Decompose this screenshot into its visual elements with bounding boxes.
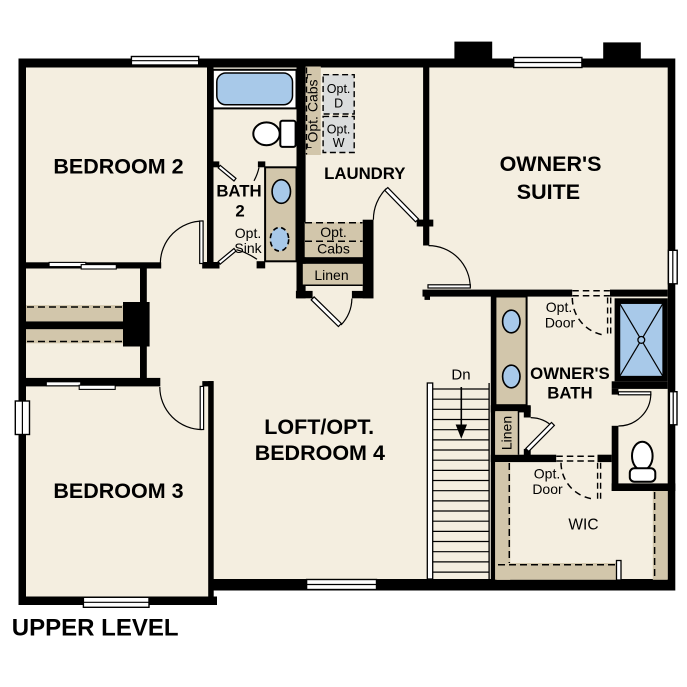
- svg-text:WIC: WIC: [568, 517, 598, 534]
- svg-text:BATH: BATH: [547, 384, 592, 403]
- svg-text:Opt.: Opt.: [534, 466, 560, 482]
- svg-text:Cabs: Cabs: [317, 241, 350, 257]
- svg-text:OWNER'S: OWNER'S: [530, 364, 610, 383]
- svg-text:Opt.: Opt.: [320, 224, 346, 240]
- svg-text:Linen: Linen: [314, 267, 348, 283]
- svg-text:W: W: [333, 136, 345, 150]
- svg-text:BEDROOM 4: BEDROOM 4: [255, 441, 385, 465]
- svg-text:LOFT/OPT.: LOFT/OPT.: [264, 415, 374, 439]
- svg-text:SUITE: SUITE: [517, 180, 580, 204]
- svg-text:Door: Door: [532, 481, 563, 497]
- svg-text:LAUNDRY: LAUNDRY: [324, 164, 405, 183]
- svg-text:Opt.: Opt.: [235, 225, 261, 241]
- svg-text:Opt.: Opt.: [327, 82, 351, 96]
- svg-text:Linen: Linen: [499, 416, 515, 450]
- svg-text:⌜Opt. Cabs⌝: ⌜Opt. Cabs⌝: [305, 73, 321, 149]
- svg-text:Door: Door: [545, 315, 576, 331]
- svg-text:BEDROOM 2: BEDROOM 2: [53, 155, 183, 179]
- svg-text:UPPER LEVEL: UPPER LEVEL: [12, 614, 179, 641]
- svg-text:BATH: BATH: [216, 182, 261, 201]
- svg-text:D: D: [334, 97, 343, 111]
- svg-text:2: 2: [235, 202, 244, 221]
- svg-text:BEDROOM 3: BEDROOM 3: [53, 479, 183, 503]
- svg-text:Opt.: Opt.: [546, 299, 572, 315]
- svg-text:OWNER'S: OWNER'S: [500, 152, 602, 176]
- svg-text:Opt.: Opt.: [327, 123, 351, 137]
- svg-text:Dn: Dn: [451, 367, 470, 384]
- svg-text:Sink: Sink: [234, 240, 262, 256]
